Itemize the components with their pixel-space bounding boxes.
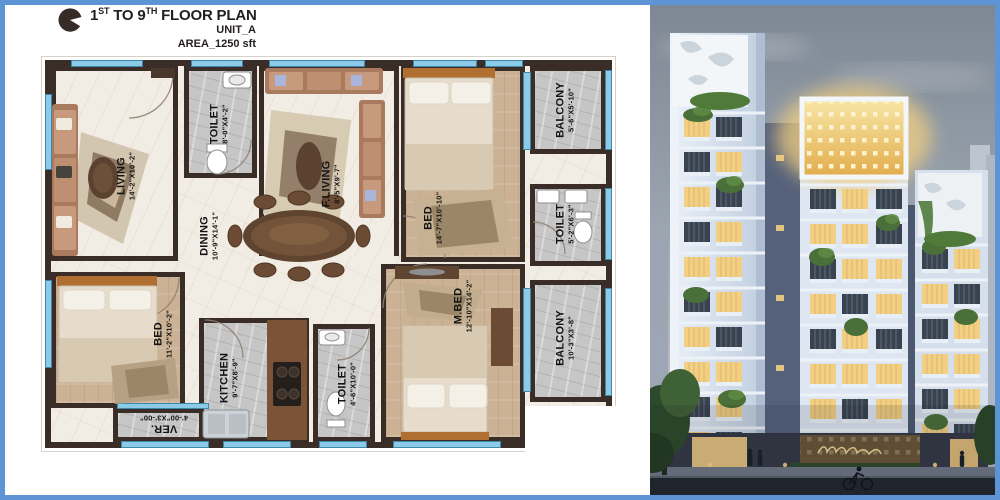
room-label-toilet-1: TOILET8'-0"X4'-2" — [209, 104, 230, 144]
room-label-dining: DINING10'-9"X14'-1" — [199, 212, 220, 260]
room-label-verandah: VER.4'-00"X3'-00" — [140, 414, 188, 435]
plan-notch — [525, 406, 620, 456]
room-label-toilet-2: TOILET5'-2"X6'-3" — [555, 204, 576, 244]
room-bed-1 — [401, 66, 525, 262]
window-strip — [269, 60, 365, 67]
room-label-toilet-3: TOILET4'-6"X10'-0" — [337, 362, 358, 406]
window-strip — [605, 288, 612, 396]
area-label: AREA_1250 sft — [90, 38, 256, 52]
window-strip — [605, 70, 612, 150]
room-label-m-bed: M.BED12'-10"X14'-2" — [453, 280, 474, 333]
window-strip — [523, 72, 531, 150]
window-strip — [191, 60, 243, 67]
room-label-f-living: F.LIVING8'-5"X9'-7" — [321, 161, 342, 208]
window-strip — [71, 60, 143, 67]
window-strip — [117, 403, 209, 409]
window-strip — [45, 94, 52, 170]
floor-plan: LIVING14'-2"X10'-2" TOILET8'-0"X4'-2" F.… — [45, 60, 612, 448]
room-label-bed-1: BED14'-7"X10'-10" — [423, 192, 444, 245]
room-kitchen — [199, 318, 309, 442]
pie-logo-icon — [56, 6, 84, 34]
window-strip — [319, 441, 367, 448]
window-strip — [223, 441, 291, 448]
page-title: 1ST TO 9TH FLOOR PLAN — [90, 6, 256, 24]
plan-header: 1ST TO 9TH FLOOR PLAN UNIT_A AREA_1250 s… — [56, 6, 256, 52]
room-living — [51, 66, 178, 261]
room-label-balcony-1: BALCONY5'-6"X5'-10" — [555, 82, 576, 138]
room-label-kitchen: KITCHEN9'-7"X8'-9" — [219, 353, 240, 403]
window-strip — [393, 441, 501, 448]
window-strip — [485, 60, 523, 67]
window-strip — [413, 60, 477, 67]
flyer: 1ST TO 9TH FLOOR PLAN UNIT_A AREA_1250 s… — [0, 0, 1000, 500]
window-strip — [605, 188, 612, 260]
window-strip — [45, 280, 52, 368]
window-strip — [121, 441, 209, 448]
building-photo — [650, 5, 995, 495]
room-label-living: LIVING14'-2"X10'-2" — [116, 152, 137, 200]
window-strip — [523, 288, 531, 392]
room-label-balcony-2: BALCONY10'-3"X3'-8" — [555, 310, 576, 366]
unit-label: UNIT_A — [90, 24, 256, 38]
room-label-bed-2: BED11'-2"X10'-2" — [153, 310, 174, 358]
